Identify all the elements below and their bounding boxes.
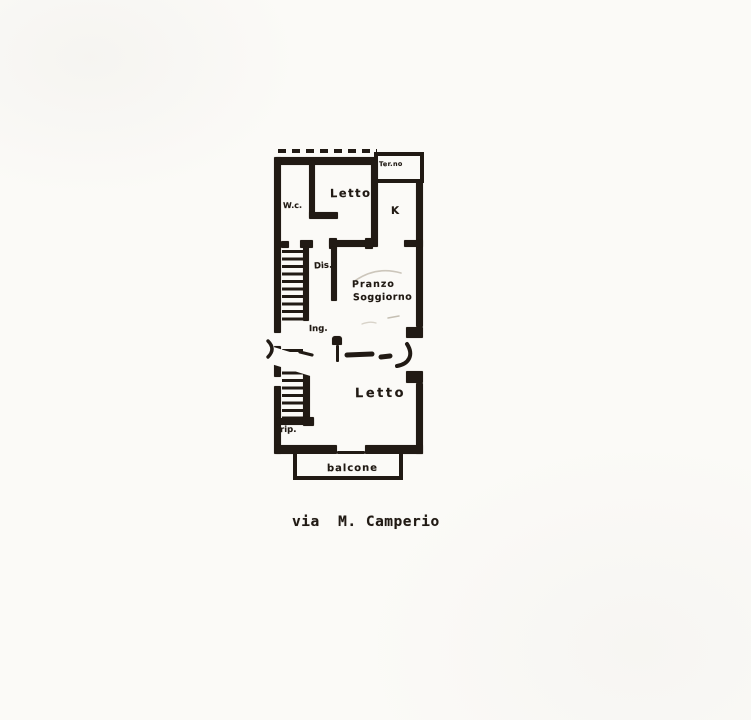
pencil-trace-faint	[362, 322, 376, 324]
wall-exterior-left-upper	[274, 157, 281, 333]
wall-kitchen-divider	[371, 161, 378, 247]
balcony-label: balcone	[327, 464, 378, 475]
wall-right-window-jamb-bottom	[406, 371, 423, 383]
hall-label: Dis.	[314, 262, 333, 271]
wall-exterior-top	[276, 157, 377, 165]
dash-curve-seg1	[347, 354, 372, 355]
freehand-marks	[0, 0, 751, 720]
party-wall-dashed-line	[278, 149, 377, 153]
kitchen-label: K	[391, 206, 399, 217]
wall-mid-post-right	[365, 238, 373, 249]
wall-exterior-right-lower	[416, 383, 423, 454]
wall-exterior-bottom-left	[276, 445, 337, 454]
entry-door-leaf	[336, 345, 339, 362]
pencil-dash-faint	[388, 316, 399, 318]
entry-door-post	[332, 336, 342, 345]
bedroom-bottom-label: Letto	[355, 387, 406, 401]
dash-curve-seg2	[381, 356, 390, 357]
dash-curve-right-hook	[397, 344, 410, 366]
wall-right-window-jamb-top	[406, 327, 423, 338]
storage-label: rip.	[280, 426, 297, 435]
wall-bedroom-top-bottom	[309, 212, 338, 219]
entry-label: Ing.	[309, 325, 328, 334]
bedroom-top-label: Letto	[330, 188, 372, 200]
wall-storage-corner-post	[303, 417, 314, 426]
wall-kitchen-bottom-stub	[404, 240, 423, 247]
wall-exterior-right-upper	[416, 180, 423, 327]
street-caption: via M. Camperio	[292, 514, 440, 530]
wall-hall-vertical	[331, 247, 337, 301]
wall-mid-left-nub	[281, 241, 289, 248]
wall-wc-partition	[309, 161, 315, 218]
scanned-paper: Ter.no balcone W.c.	[0, 0, 751, 720]
wall-exterior-bottom-right	[365, 445, 423, 454]
living-label-line1: Pranzo	[352, 280, 395, 290]
wall-stairs-right-upper	[303, 247, 309, 321]
staircase-upper-flight	[282, 250, 303, 321]
wc-label: W.c.	[283, 202, 302, 210]
terrace-label: Ter.no	[379, 161, 403, 168]
living-label-line2: Soggiorno	[353, 293, 412, 303]
